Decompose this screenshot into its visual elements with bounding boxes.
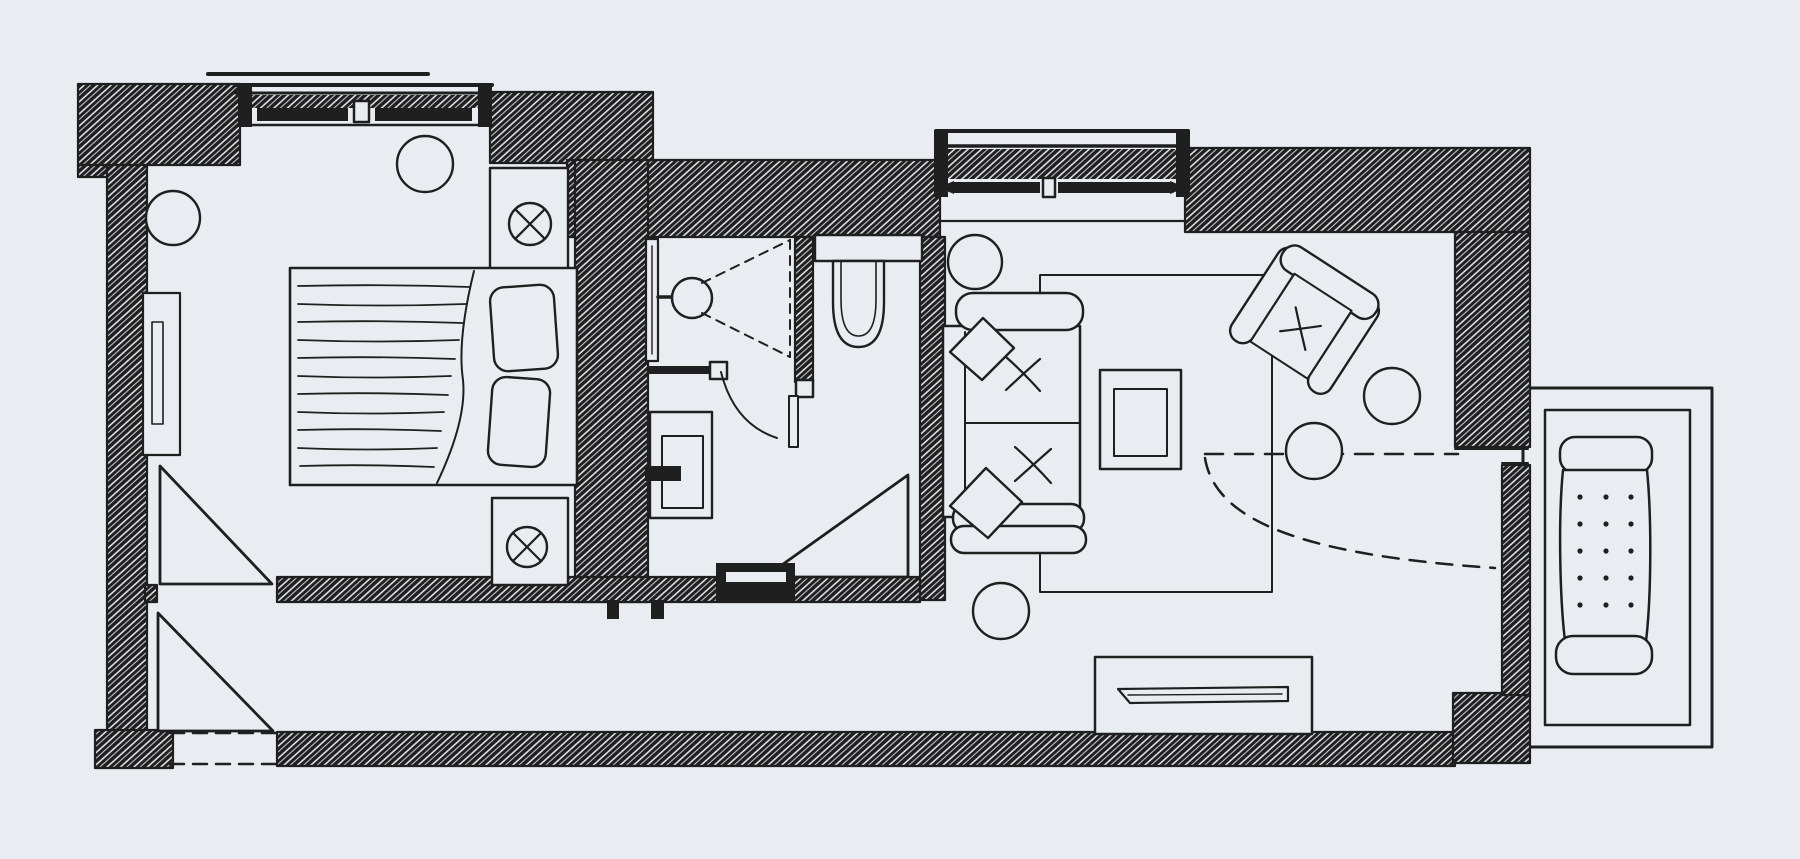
- round-stool: [397, 136, 453, 192]
- floor-plan-canvas: [0, 0, 1800, 859]
- wall-living-west: [920, 237, 945, 600]
- wall-west: [107, 165, 147, 740]
- bathroom-door-leaf: [789, 396, 798, 447]
- track-stub: [651, 600, 664, 619]
- track-stub: [607, 600, 619, 619]
- wall-north-east: [1185, 148, 1530, 232]
- toilet-cistern: [815, 235, 922, 261]
- sofa-armrest-bottom: [951, 526, 1086, 553]
- tv-console: [1095, 657, 1312, 734]
- wall-wc-partition: [795, 237, 813, 382]
- faucet: [645, 466, 681, 481]
- window-jamb: [1176, 131, 1190, 197]
- radiator: [152, 322, 163, 424]
- shower-head: [672, 278, 712, 318]
- round-side-table: [1286, 423, 1342, 479]
- wall-east-upper: [1455, 232, 1530, 447]
- nightstand-bottom: [492, 498, 568, 585]
- sun-lounger: [1556, 437, 1652, 674]
- wall-southwest-block: [95, 730, 173, 768]
- window-center-stop: [1043, 178, 1055, 197]
- floor-plan-page: [0, 0, 1800, 859]
- window-center-stop: [354, 101, 369, 122]
- round-stool: [973, 583, 1029, 639]
- wall-north-step-block: [490, 92, 653, 163]
- window-sash: [952, 182, 1040, 193]
- lounger-footrest: [1556, 636, 1652, 674]
- round-side-table: [1364, 368, 1420, 424]
- window-jamb: [238, 85, 252, 127]
- pillow: [489, 284, 559, 372]
- window-sash: [375, 108, 472, 121]
- lounger-headrest: [1560, 437, 1652, 473]
- round-stool: [146, 191, 200, 245]
- wall-hallway-north: [277, 577, 920, 602]
- wall-east-lower: [1502, 465, 1530, 695]
- window-jamb: [478, 85, 492, 127]
- pillow: [487, 376, 551, 468]
- coffee-table: [1100, 370, 1181, 469]
- door-hinge-block: [796, 380, 813, 397]
- tv-inner-line: [1128, 694, 1282, 695]
- sofa: [943, 293, 1086, 553]
- sofa-armrest-top: [956, 293, 1083, 330]
- nightstand-top: [490, 168, 568, 278]
- double-bed: [290, 268, 577, 485]
- wall-stub: [648, 366, 710, 374]
- balcony: [1523, 388, 1712, 747]
- window-jamb: [934, 131, 948, 197]
- coffee-table-inner: [1114, 389, 1167, 456]
- wall-south: [277, 732, 1455, 766]
- threshold-slot: [726, 572, 786, 582]
- wall-bedroom-bathroom: [575, 160, 648, 602]
- wall-top-left-corner: [78, 84, 240, 165]
- bathroom-threshold: [716, 563, 795, 602]
- window-sill-hatch: [938, 149, 1186, 179]
- window-sash: [257, 108, 348, 121]
- wall-stub-bedroom-door: [145, 585, 157, 602]
- door-latch-block: [710, 362, 727, 379]
- round-stool: [948, 235, 1002, 289]
- wall-parapet-step: [78, 165, 107, 177]
- wall-southeast-block: [1453, 693, 1530, 763]
- window-sash: [1058, 182, 1172, 193]
